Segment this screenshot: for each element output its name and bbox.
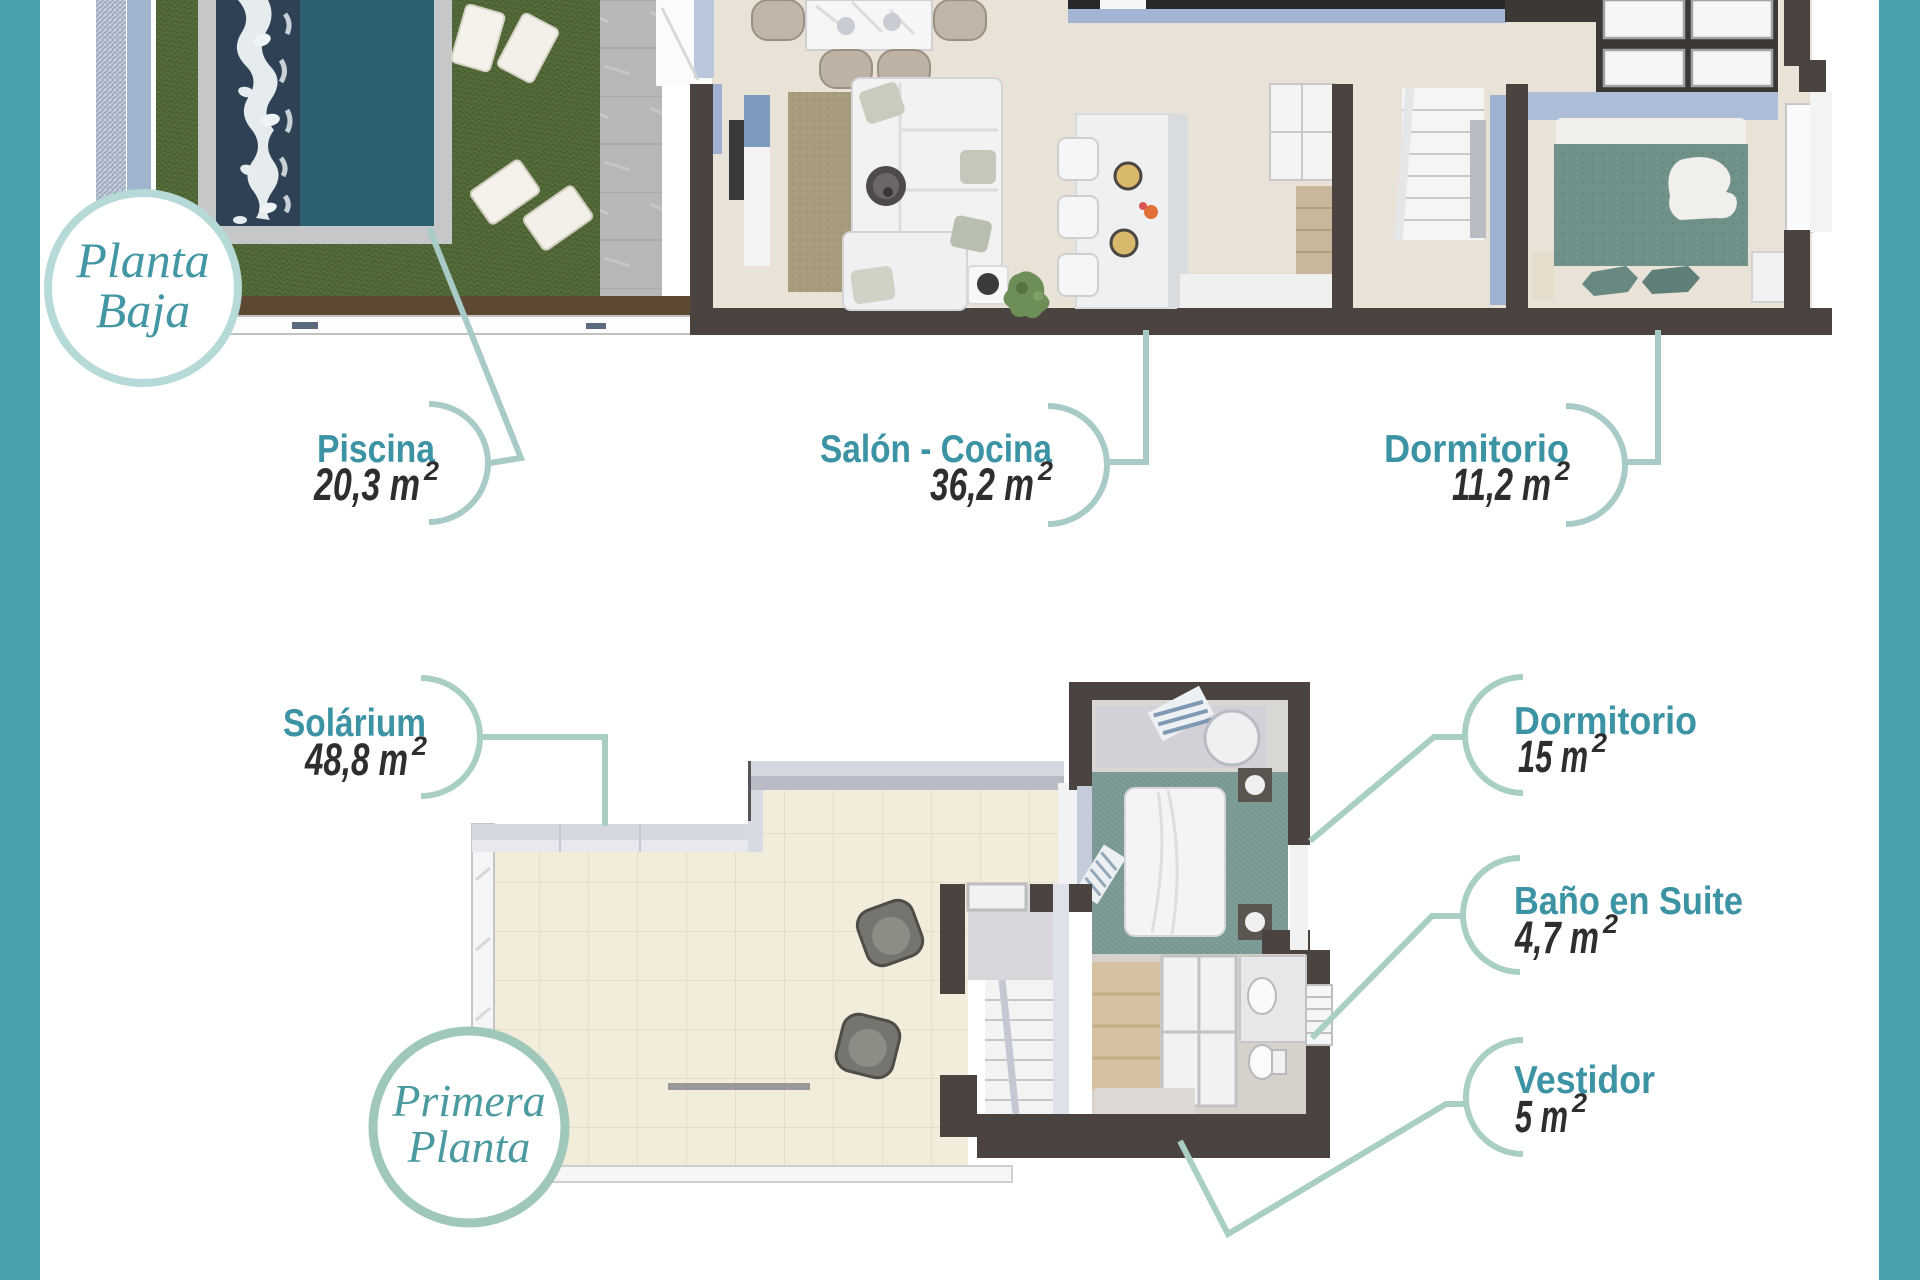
svg-text:Baja: Baja <box>96 282 190 338</box>
svg-text:36,2 m: 36,2 m <box>930 459 1034 510</box>
svg-text:2: 2 <box>423 456 439 486</box>
svg-text:15 m: 15 m <box>1518 731 1588 782</box>
svg-text:4,7 m: 4,7 m <box>1514 912 1599 963</box>
svg-text:11,2 m: 11,2 m <box>1452 459 1551 510</box>
svg-text:20,3 m: 20,3 m <box>313 459 420 510</box>
svg-text:48,8 m: 48,8 m <box>304 734 408 785</box>
svg-text:2: 2 <box>1591 728 1607 758</box>
svg-text:2: 2 <box>1037 456 1053 486</box>
svg-text:Planta: Planta <box>407 1121 531 1172</box>
svg-text:Primera: Primera <box>391 1075 545 1126</box>
svg-text:2: 2 <box>411 731 427 761</box>
svg-text:2: 2 <box>1554 456 1570 486</box>
svg-text:2: 2 <box>1602 909 1618 939</box>
svg-text:Planta: Planta <box>75 232 209 288</box>
svg-text:2: 2 <box>1571 1088 1587 1118</box>
svg-text:5 m: 5 m <box>1515 1091 1568 1142</box>
